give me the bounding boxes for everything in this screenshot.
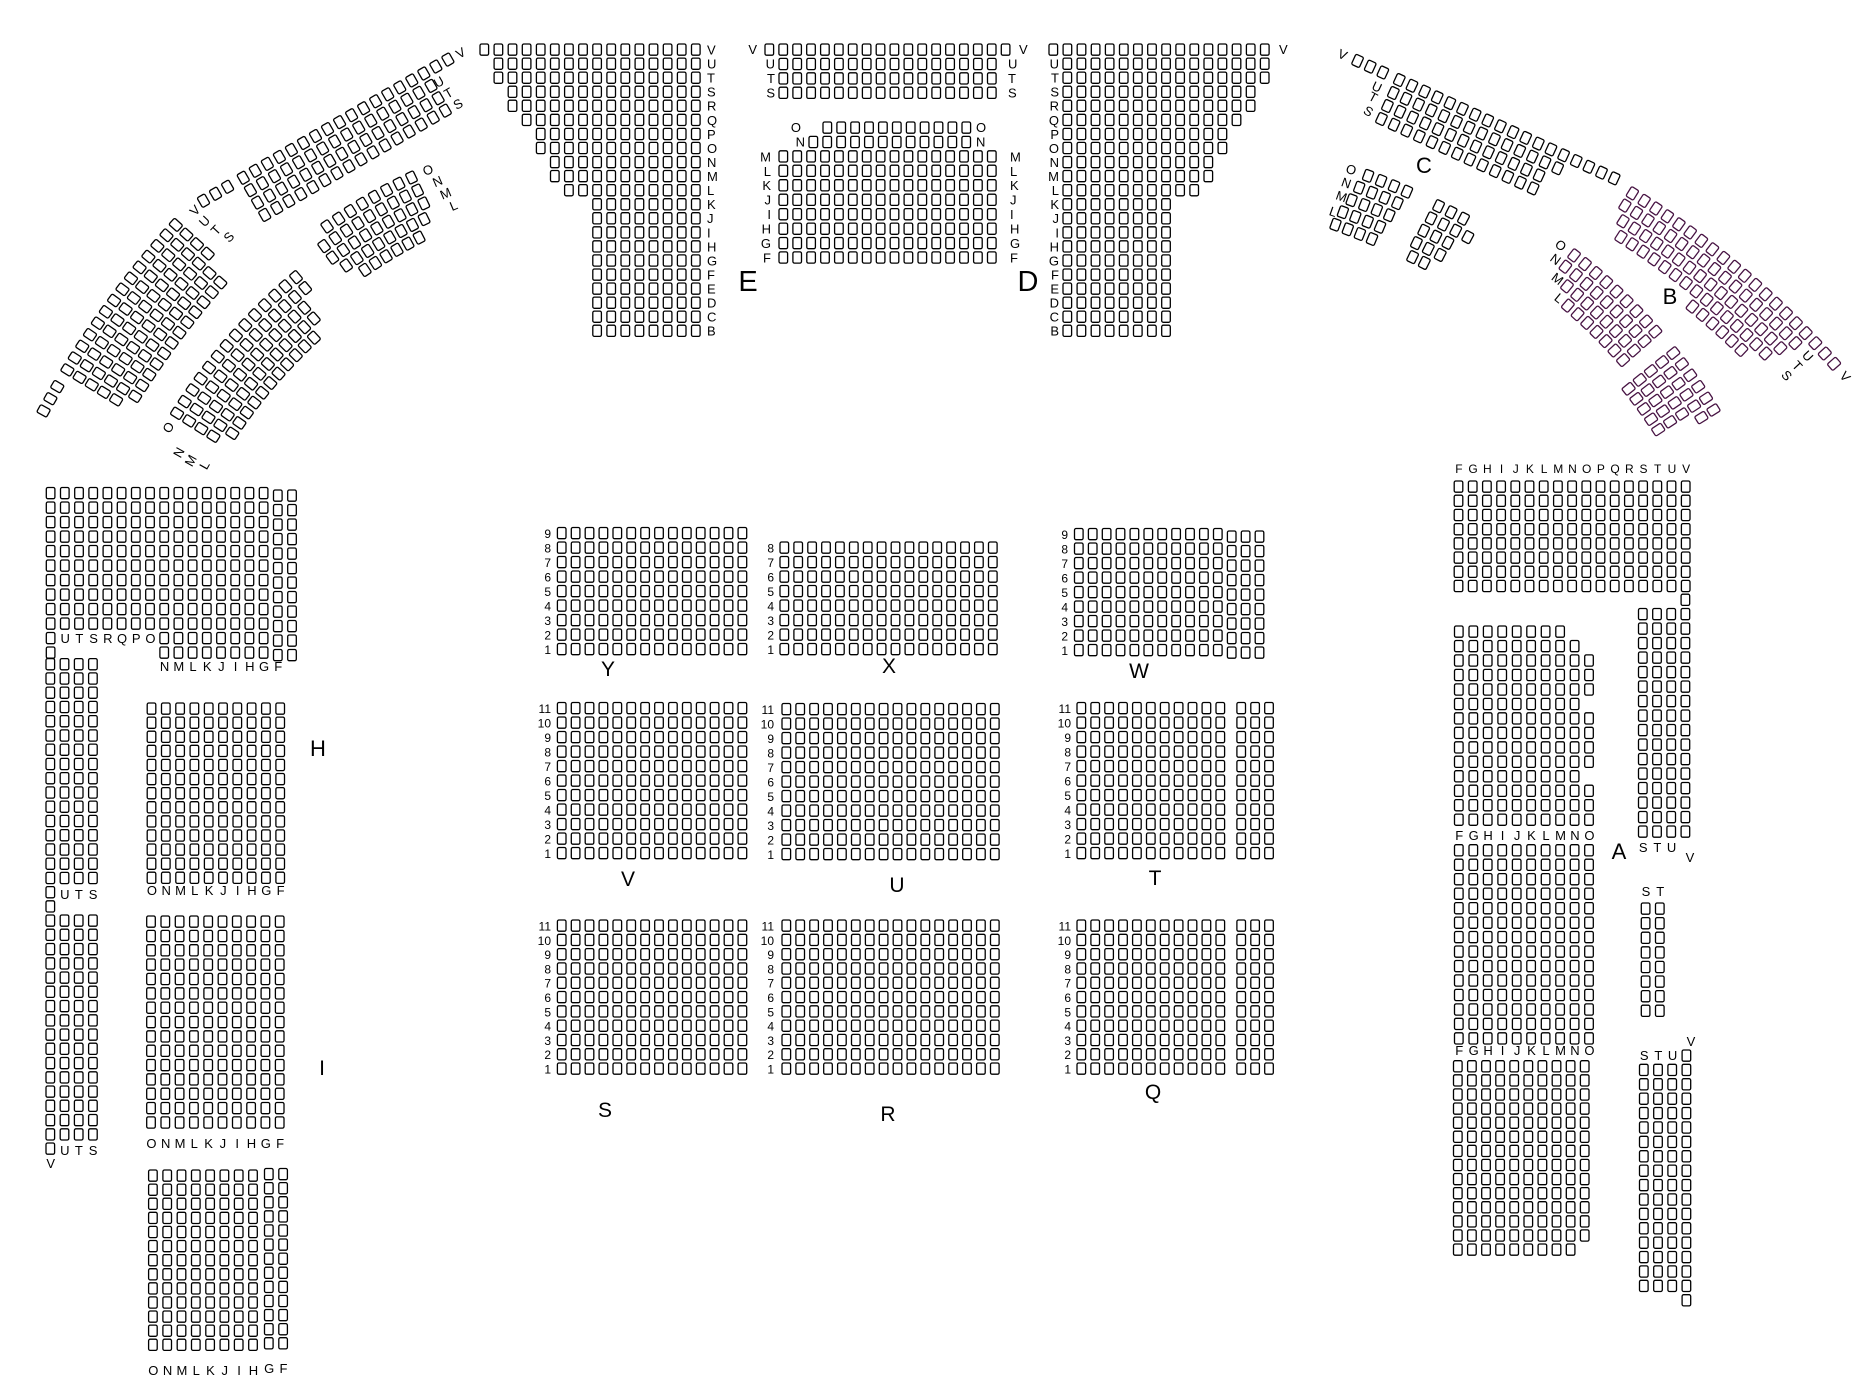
svg-text:8: 8 [767, 962, 774, 976]
svg-text:T: T [767, 71, 775, 86]
svg-text:M: M [1555, 828, 1566, 843]
svg-text:T: T [1149, 867, 1162, 890]
svg-text:U: U [1050, 57, 1059, 72]
svg-text:3: 3 [1061, 615, 1068, 629]
svg-text:O: O [1584, 1043, 1594, 1058]
svg-text:2: 2 [767, 629, 774, 643]
svg-text:J: J [1514, 1043, 1521, 1058]
svg-text:J: J [220, 1136, 227, 1151]
svg-text:B: B [1663, 284, 1678, 309]
svg-text:H: H [310, 736, 326, 761]
svg-text:1: 1 [767, 848, 774, 862]
svg-text:1: 1 [544, 643, 551, 657]
svg-text:O: O [791, 120, 801, 135]
svg-text:7: 7 [544, 977, 551, 991]
svg-text:1: 1 [767, 643, 774, 657]
svg-text:I: I [236, 883, 240, 898]
svg-text:2: 2 [767, 834, 774, 848]
svg-text:9: 9 [1064, 731, 1071, 745]
svg-text:F: F [763, 250, 771, 265]
svg-text:P: P [1597, 462, 1605, 476]
svg-text:T: T [1051, 71, 1059, 86]
svg-text:Q: Q [1145, 1081, 1161, 1104]
svg-text:5: 5 [544, 585, 551, 599]
svg-text:M: M [760, 149, 771, 164]
svg-text:7: 7 [1061, 557, 1068, 571]
svg-text:S: S [1642, 884, 1651, 899]
svg-text:6: 6 [544, 571, 551, 585]
svg-text:V: V [1019, 42, 1028, 57]
svg-text:3: 3 [767, 1034, 774, 1048]
svg-text:K: K [1527, 828, 1536, 843]
svg-text:10: 10 [1058, 934, 1072, 948]
svg-text:2: 2 [544, 629, 551, 643]
svg-text:G: G [264, 1361, 274, 1376]
svg-text:V: V [1687, 1034, 1696, 1049]
svg-text:9: 9 [1064, 948, 1071, 962]
svg-text:T: T [75, 887, 83, 902]
svg-text:8: 8 [767, 542, 774, 556]
svg-text:9: 9 [767, 948, 774, 962]
svg-text:L: L [1542, 828, 1549, 843]
svg-text:M: M [175, 883, 186, 898]
svg-text:L: L [707, 183, 714, 198]
svg-text:L: L [764, 164, 771, 179]
svg-text:I: I [767, 207, 771, 222]
svg-text:I: I [1010, 207, 1014, 222]
svg-text:Q: Q [1049, 113, 1059, 128]
svg-text:L: L [191, 1136, 198, 1151]
svg-text:3: 3 [767, 614, 774, 628]
svg-text:F: F [1455, 828, 1463, 843]
svg-text:7: 7 [1064, 760, 1071, 774]
svg-text:F: F [277, 883, 285, 898]
svg-text:V: V [621, 868, 635, 891]
svg-text:S: S [89, 1143, 98, 1158]
svg-text:E: E [1050, 282, 1059, 297]
svg-text:I: I [1501, 828, 1505, 843]
svg-text:Y: Y [601, 658, 615, 681]
svg-text:M: M [1010, 149, 1021, 164]
svg-text:V: V [46, 1156, 55, 1171]
svg-text:5: 5 [544, 789, 551, 803]
svg-text:11: 11 [539, 702, 552, 716]
svg-text:P: P [1050, 127, 1059, 142]
svg-text:10: 10 [1058, 717, 1072, 731]
svg-text:5: 5 [1064, 1005, 1071, 1019]
svg-text:U: U [60, 887, 69, 902]
svg-text:G: G [1469, 1043, 1479, 1058]
svg-text:R: R [1625, 462, 1634, 476]
svg-text:N: N [162, 883, 171, 898]
svg-text:F: F [1051, 268, 1059, 283]
svg-text:7: 7 [767, 556, 774, 570]
svg-text:C: C [707, 310, 716, 325]
svg-text:M: M [1555, 1043, 1566, 1058]
svg-text:K: K [762, 178, 771, 193]
svg-text:L: L [1541, 462, 1548, 476]
svg-text:5: 5 [1064, 789, 1071, 803]
svg-text:S: S [89, 631, 98, 646]
svg-text:5: 5 [767, 790, 774, 804]
svg-text:J: J [222, 1363, 229, 1378]
svg-text:F: F [1455, 1043, 1463, 1058]
svg-text:U: U [707, 57, 716, 72]
svg-text:C: C [1416, 153, 1432, 178]
svg-text:M: M [1553, 462, 1563, 476]
svg-text:5: 5 [1061, 586, 1068, 600]
svg-text:L: L [191, 883, 198, 898]
svg-text:L: L [1010, 164, 1017, 179]
svg-text:H: H [1483, 828, 1492, 843]
svg-text:1: 1 [544, 1063, 551, 1077]
svg-text:5: 5 [544, 1005, 551, 1019]
svg-text:J: J [1053, 211, 1060, 226]
svg-text:4: 4 [544, 804, 551, 818]
svg-text:S: S [766, 85, 775, 100]
svg-text:3: 3 [767, 819, 774, 833]
svg-text:U: U [766, 57, 775, 72]
svg-text:S: S [1639, 462, 1647, 476]
svg-text:4: 4 [767, 600, 774, 614]
svg-text:V: V [1682, 462, 1690, 476]
svg-text:M: M [707, 169, 718, 184]
svg-text:11: 11 [1059, 920, 1072, 934]
svg-text:9: 9 [544, 948, 551, 962]
svg-text:1: 1 [1064, 1063, 1071, 1077]
svg-text:2: 2 [1064, 1048, 1071, 1062]
svg-text:E: E [738, 266, 757, 298]
svg-text:11: 11 [762, 920, 775, 934]
svg-text:11: 11 [762, 703, 775, 717]
svg-text:T: T [707, 71, 715, 86]
svg-text:5: 5 [767, 585, 774, 599]
svg-text:U: U [1668, 1048, 1677, 1063]
svg-text:10: 10 [538, 717, 552, 731]
svg-text:L: L [193, 1363, 200, 1378]
svg-text:8: 8 [544, 746, 551, 760]
svg-text:K: K [203, 659, 212, 674]
svg-text:3: 3 [544, 1034, 551, 1048]
svg-text:S: S [1640, 1048, 1649, 1063]
svg-text:M: M [173, 659, 184, 674]
svg-text:G: G [1049, 253, 1059, 268]
svg-text:9: 9 [767, 732, 774, 746]
svg-text:6: 6 [1061, 572, 1068, 586]
svg-text:N: N [796, 134, 805, 149]
svg-text:10: 10 [761, 718, 775, 732]
svg-text:8: 8 [767, 747, 774, 761]
svg-text:K: K [1010, 178, 1019, 193]
svg-text:T: T [1654, 462, 1662, 476]
svg-text:T: T [1654, 1048, 1662, 1063]
svg-text:11: 11 [1059, 702, 1072, 716]
svg-text:H: H [249, 1363, 258, 1378]
svg-text:K: K [206, 1363, 215, 1378]
svg-text:G: G [261, 883, 271, 898]
svg-text:S: S [1008, 85, 1017, 100]
svg-text:I: I [234, 659, 238, 674]
svg-text:10: 10 [761, 934, 775, 948]
svg-text:11: 11 [539, 920, 552, 934]
svg-text:I: I [237, 1363, 241, 1378]
svg-text:O: O [976, 120, 986, 135]
svg-text:U: U [60, 1143, 69, 1158]
svg-text:G: G [261, 1136, 271, 1151]
svg-text:I: I [707, 225, 711, 240]
svg-text:O: O [1582, 462, 1591, 476]
svg-text:6: 6 [767, 991, 774, 1005]
svg-text:I: I [235, 1136, 239, 1151]
svg-text:7: 7 [767, 761, 774, 775]
svg-text:T: T [1008, 71, 1016, 86]
svg-text:O: O [148, 1363, 158, 1378]
svg-text:O: O [707, 141, 717, 156]
svg-text:K: K [707, 197, 716, 212]
svg-text:T: T [75, 1143, 83, 1158]
svg-text:N: N [1050, 155, 1059, 170]
svg-text:R: R [103, 631, 112, 646]
svg-text:W: W [1129, 660, 1149, 683]
svg-text:B: B [707, 324, 716, 339]
svg-text:H: H [1050, 239, 1059, 254]
svg-text:5: 5 [767, 1005, 774, 1019]
svg-text:G: G [1010, 236, 1020, 251]
svg-text:I: I [319, 1057, 325, 1080]
svg-text:N: N [976, 134, 985, 149]
svg-text:6: 6 [1064, 775, 1071, 789]
svg-text:F: F [1455, 462, 1462, 476]
svg-text:1: 1 [1064, 847, 1071, 861]
svg-text:O: O [147, 883, 157, 898]
svg-text:G: G [259, 659, 269, 674]
svg-text:H: H [707, 239, 716, 254]
svg-text:9: 9 [544, 731, 551, 745]
svg-text:N: N [1570, 828, 1579, 843]
svg-text:S: S [1050, 85, 1059, 100]
svg-text:4: 4 [767, 1020, 774, 1034]
svg-text:V: V [748, 42, 757, 57]
svg-text:H: H [762, 222, 771, 237]
svg-text:X: X [882, 655, 896, 678]
svg-text:O: O [1584, 828, 1594, 843]
svg-text:F: F [707, 268, 715, 283]
svg-text:A: A [1612, 839, 1627, 864]
svg-text:K: K [204, 1136, 213, 1151]
svg-text:S: S [707, 85, 716, 100]
svg-text:8: 8 [1064, 746, 1071, 760]
svg-text:N: N [1570, 1043, 1579, 1058]
svg-text:P: P [707, 127, 716, 142]
svg-text:K: K [1050, 197, 1059, 212]
svg-text:8: 8 [544, 542, 551, 556]
svg-text:2: 2 [1061, 630, 1068, 644]
svg-text:7: 7 [544, 760, 551, 774]
svg-text:P: P [132, 631, 141, 646]
svg-text:I: I [1501, 1043, 1505, 1058]
svg-text:F: F [280, 1361, 288, 1376]
svg-text:2: 2 [767, 1048, 774, 1062]
svg-text:G: G [761, 236, 771, 251]
svg-text:U: U [1668, 462, 1677, 476]
svg-text:D: D [1050, 296, 1059, 311]
svg-text:R: R [1050, 99, 1059, 114]
svg-text:G: G [1469, 828, 1479, 843]
svg-text:6: 6 [544, 991, 551, 1005]
svg-text:N: N [163, 1363, 172, 1378]
svg-text:N: N [1568, 462, 1577, 476]
svg-text:4: 4 [544, 600, 551, 614]
svg-text:3: 3 [544, 818, 551, 832]
svg-text:G: G [707, 253, 717, 268]
svg-text:J: J [220, 883, 227, 898]
svg-text:F: F [276, 1136, 284, 1151]
svg-text:N: N [707, 155, 716, 170]
svg-text:S: S [1639, 840, 1648, 855]
svg-text:V: V [1686, 850, 1695, 865]
svg-text:H: H [247, 883, 256, 898]
svg-text:T: T [75, 631, 83, 646]
svg-text:F: F [1010, 250, 1018, 265]
svg-text:O: O [146, 1136, 156, 1151]
svg-text:K: K [1526, 462, 1534, 476]
svg-text:C: C [1050, 310, 1059, 325]
svg-text:G: G [1468, 462, 1477, 476]
svg-text:S: S [598, 1099, 612, 1122]
svg-text:Q: Q [707, 113, 717, 128]
svg-text:4: 4 [1064, 1020, 1071, 1034]
svg-text:J: J [1513, 462, 1519, 476]
svg-text:R: R [707, 99, 716, 114]
svg-text:F: F [274, 659, 282, 674]
svg-text:J: J [218, 659, 225, 674]
svg-text:3: 3 [544, 614, 551, 628]
svg-text:H: H [1483, 1043, 1492, 1058]
svg-text:N: N [161, 1136, 170, 1151]
svg-text:9: 9 [1061, 528, 1068, 542]
svg-text:10: 10 [538, 934, 552, 948]
svg-text:I: I [1055, 225, 1059, 240]
svg-text:N: N [160, 659, 169, 674]
svg-text:7: 7 [1064, 977, 1071, 991]
svg-text:3: 3 [1064, 818, 1071, 832]
svg-text:1: 1 [544, 847, 551, 861]
svg-text:2: 2 [544, 1048, 551, 1062]
svg-text:S: S [89, 887, 98, 902]
svg-text:M: M [1048, 169, 1059, 184]
svg-text:H: H [1483, 462, 1492, 476]
svg-text:T: T [1656, 884, 1664, 899]
svg-text:Q: Q [1610, 462, 1619, 476]
svg-text:J: J [707, 211, 714, 226]
svg-text:B: B [1050, 324, 1059, 339]
svg-text:U: U [889, 874, 904, 897]
svg-text:4: 4 [767, 805, 774, 819]
svg-text:7: 7 [544, 556, 551, 570]
svg-text:K: K [205, 883, 214, 898]
svg-text:R: R [880, 1103, 895, 1126]
svg-text:L: L [1052, 183, 1059, 198]
svg-text:E: E [707, 282, 716, 297]
svg-text:H: H [1010, 222, 1019, 237]
svg-text:V: V [707, 43, 716, 58]
svg-text:4: 4 [544, 1020, 551, 1034]
svg-text:H: H [245, 659, 254, 674]
svg-text:1: 1 [1061, 644, 1068, 658]
svg-text:4: 4 [1064, 804, 1071, 818]
svg-text:2: 2 [1064, 833, 1071, 847]
svg-text:K: K [1527, 1043, 1536, 1058]
svg-text:7: 7 [767, 977, 774, 991]
svg-text:U: U [61, 631, 70, 646]
svg-text:L: L [189, 659, 196, 674]
svg-text:1: 1 [767, 1063, 774, 1077]
svg-text:V: V [1279, 42, 1288, 57]
svg-text:8: 8 [1064, 962, 1071, 976]
svg-text:D: D [1018, 266, 1039, 298]
svg-text:4: 4 [1061, 601, 1068, 615]
svg-text:U: U [1667, 840, 1676, 855]
svg-text:J: J [765, 193, 772, 208]
svg-text:I: I [1500, 462, 1503, 476]
svg-text:T: T [1653, 840, 1661, 855]
svg-text:H: H [247, 1136, 256, 1151]
svg-text:M: M [176, 1363, 187, 1378]
svg-text:J: J [1514, 828, 1521, 843]
svg-text:6: 6 [544, 775, 551, 789]
svg-text:6: 6 [1064, 991, 1071, 1005]
svg-text:U: U [1008, 57, 1017, 72]
svg-text:8: 8 [544, 962, 551, 976]
svg-text:8: 8 [1061, 543, 1068, 557]
svg-text:J: J [1010, 193, 1017, 208]
svg-text:2: 2 [544, 833, 551, 847]
svg-text:L: L [1542, 1043, 1549, 1058]
svg-text:O: O [145, 631, 155, 646]
svg-text:D: D [707, 296, 716, 311]
svg-text:6: 6 [767, 776, 774, 790]
svg-text:6: 6 [767, 571, 774, 585]
svg-text:9: 9 [544, 527, 551, 541]
svg-text:3: 3 [1064, 1034, 1071, 1048]
svg-text:Q: Q [117, 631, 127, 646]
svg-text:O: O [1049, 141, 1059, 156]
svg-text:M: M [175, 1136, 186, 1151]
